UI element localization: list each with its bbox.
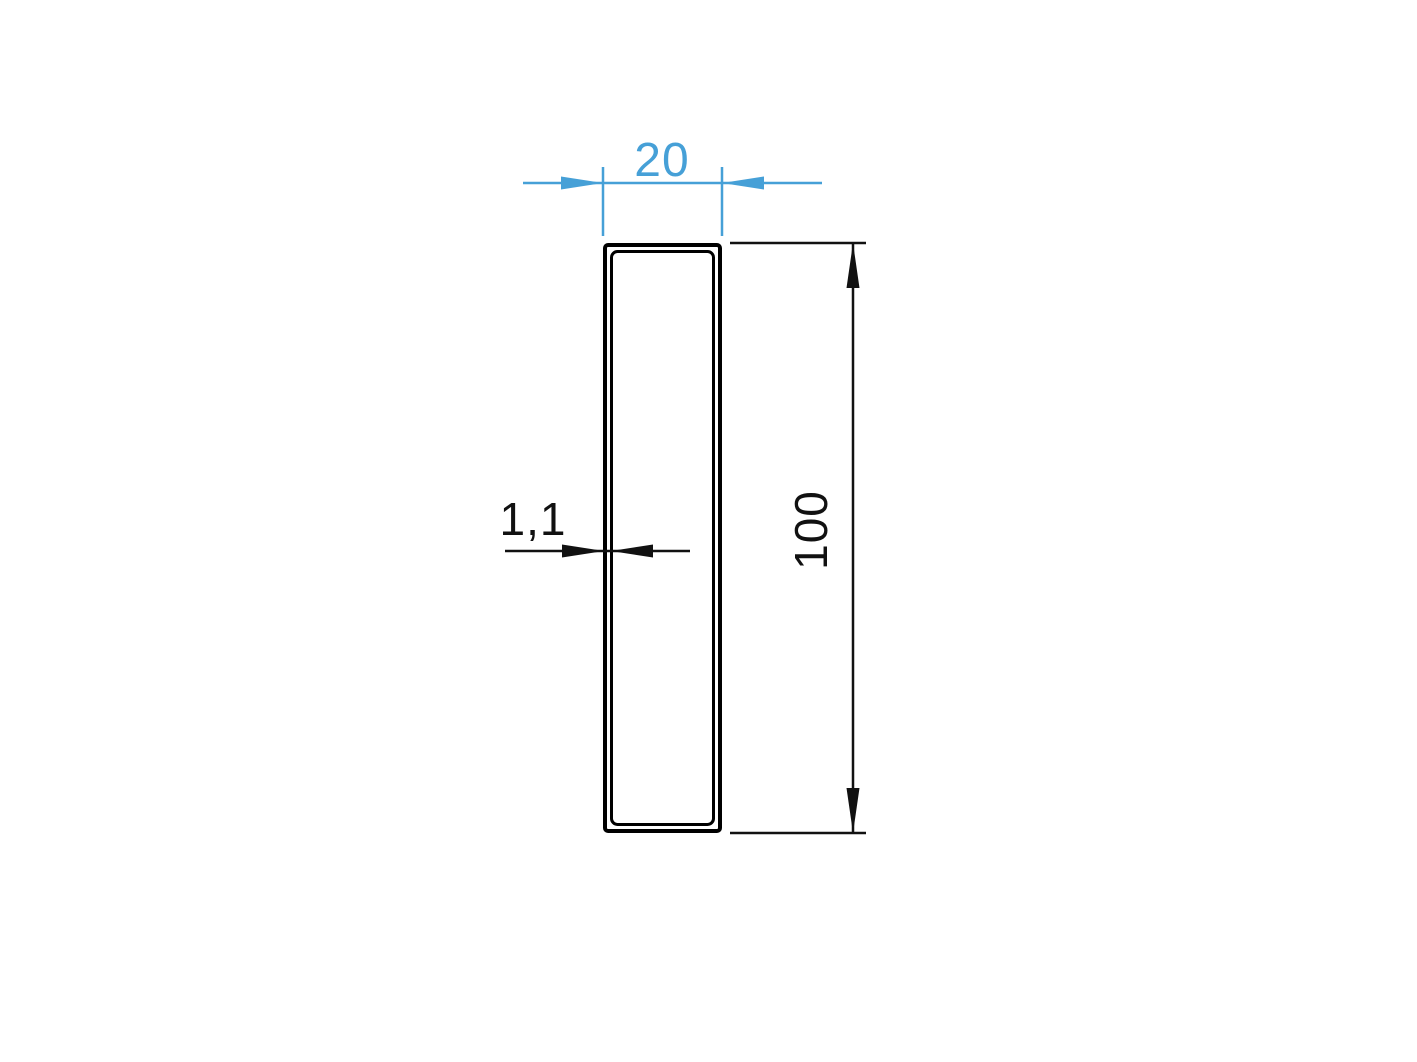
thickness-dimension: 1,1 bbox=[500, 493, 690, 558]
inner-profile-rect bbox=[612, 252, 714, 825]
height-arrow-up-icon bbox=[847, 243, 860, 288]
height-arrow-down-icon bbox=[847, 788, 860, 833]
width-dimension: 20 bbox=[523, 134, 822, 236]
width-arrow-right-icon bbox=[722, 177, 764, 190]
width-dimension-label: 20 bbox=[634, 134, 689, 187]
height-dimension: 100 bbox=[730, 243, 866, 833]
profile-drawing: 20 100 1,1 bbox=[0, 0, 1417, 1062]
height-dimension-label: 100 bbox=[785, 490, 837, 570]
drawing-canvas: 20 100 1,1 bbox=[0, 0, 1417, 1062]
thickness-dimension-label: 1,1 bbox=[500, 493, 567, 545]
tube-profile bbox=[605, 245, 720, 831]
outer-profile-rect bbox=[605, 245, 720, 831]
width-arrow-left-icon bbox=[561, 177, 603, 190]
thickness-arrow-left-icon bbox=[611, 545, 653, 558]
thickness-arrow-right-icon bbox=[562, 545, 604, 558]
